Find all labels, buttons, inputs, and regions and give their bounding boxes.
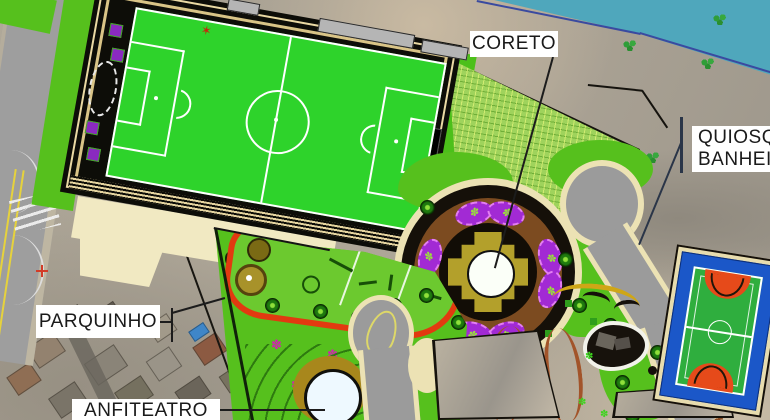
tree-icon [712, 14, 727, 25]
planter-icon [86, 147, 101, 162]
leader-line-anfiteatro [205, 409, 325, 411]
kiosk-circle [235, 264, 267, 296]
label-banheiro-text: BANHEIRO [698, 149, 770, 171]
label-parquinho: PARQUINHO [36, 305, 160, 338]
rock [614, 337, 631, 350]
tree-icon [313, 304, 328, 319]
planter-icon [110, 48, 125, 63]
tree-icon [419, 288, 434, 303]
gazebo-roof [467, 250, 515, 298]
play-equipment [388, 274, 393, 290]
court-playing-surface [675, 266, 763, 395]
rock [595, 332, 616, 350]
label-anfiteatro: ANFITEATRO [72, 399, 220, 420]
play-equipment [301, 274, 321, 294]
star-icon: ✶ [200, 23, 213, 38]
flower-icon: ✽ [578, 398, 586, 408]
flower-icon: ✽ [543, 252, 556, 264]
flower-icon: ✽ [600, 410, 608, 420]
court-blue-apron [659, 251, 770, 411]
play-equipment [359, 280, 377, 285]
bush-icon [590, 318, 597, 325]
bush-icon [565, 300, 572, 307]
kiosk-center [246, 275, 252, 281]
planter-icon [85, 120, 100, 135]
play-area-divider [339, 247, 362, 306]
label-parquinho-text: PARQUINHO [39, 311, 157, 333]
survey-cross-marker [41, 265, 43, 277]
label-quiosque-text: QUIOSQUE [698, 127, 770, 149]
label-anfiteatro-text: ANFITEATRO [84, 400, 208, 420]
flower-icon: ✽ [468, 207, 480, 220]
tree-icon [265, 298, 280, 313]
amphitheater-stage [304, 369, 362, 420]
flower-icon: ✽ [585, 352, 593, 362]
play-equipment [329, 258, 353, 273]
planter-icon [108, 23, 123, 38]
kiosk-circle [247, 238, 271, 262]
site-plan-canvas: ✶ ✽ ✽ ✽ ✽ ✽ ✽ ✽ ✽ [0, 0, 770, 420]
tree-icon [700, 58, 715, 69]
label-coreto: CORETO [470, 31, 558, 57]
center-circle [241, 85, 315, 159]
flower-icon: ✽ [423, 252, 436, 264]
tree-icon [558, 252, 573, 267]
tree-icon [615, 375, 630, 390]
label-quiosque-banheiro: QUIOSQUE BANHEIRO [692, 126, 770, 172]
tree-icon [622, 40, 637, 51]
label-coreto-text: CORETO [472, 33, 556, 55]
tree-icon [420, 200, 435, 215]
